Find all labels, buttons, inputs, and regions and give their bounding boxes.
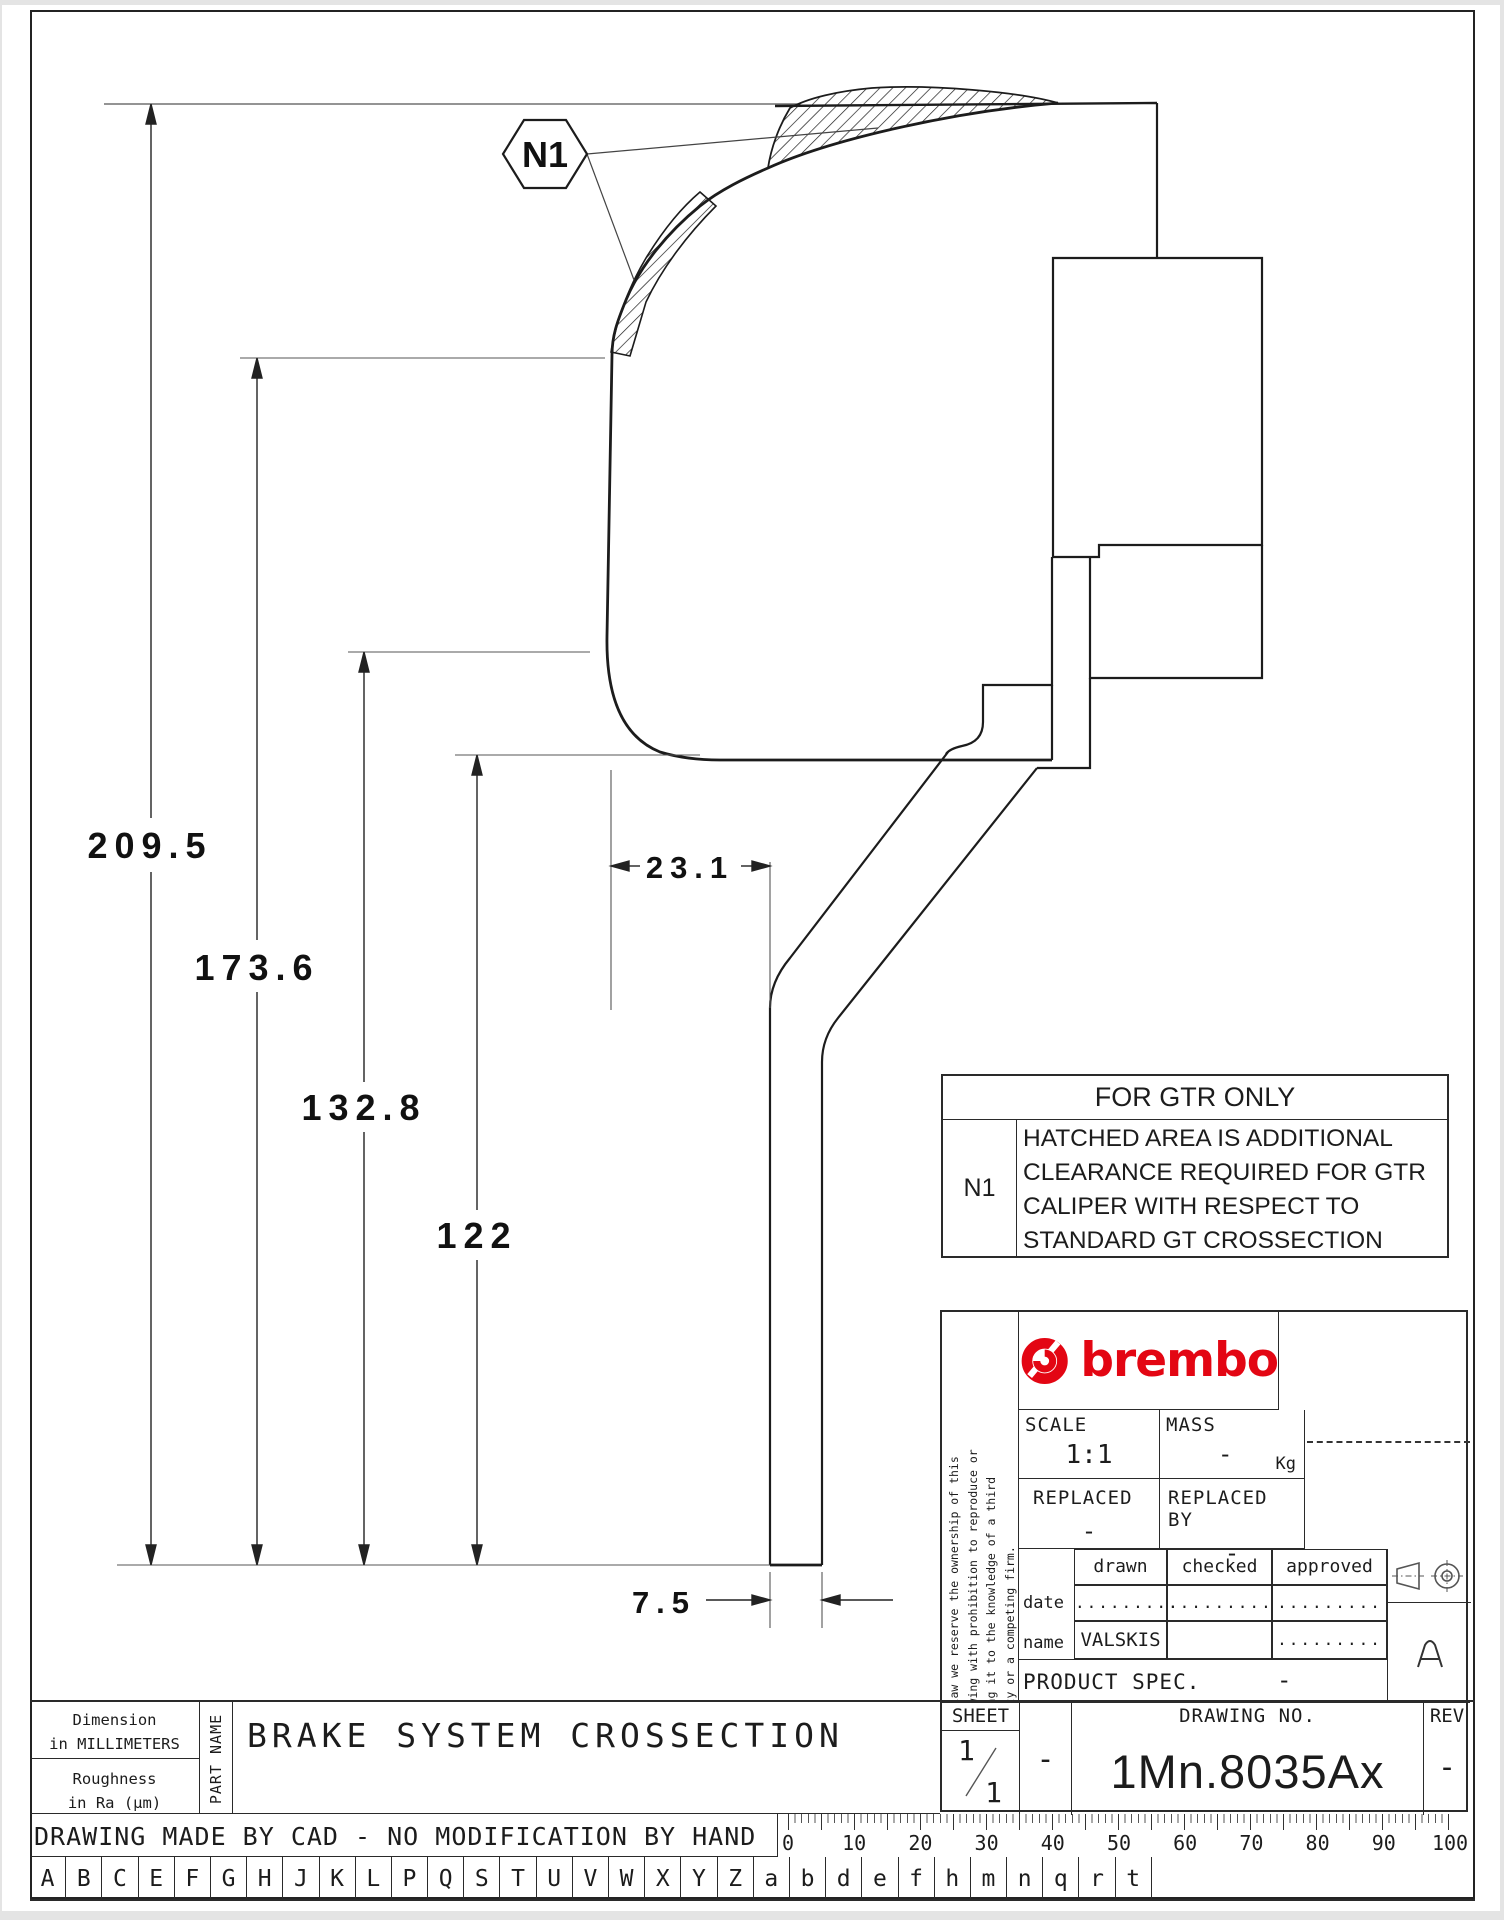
ruler-number: 100 [1420,1831,1480,1855]
zone-letter: X [645,1857,681,1901]
scale-value: 1:1 [1019,1440,1159,1470]
ruler-number: 0 [758,1831,818,1855]
drawing-sheet: 209.5 173.6 132.8 122 23.1 7.5 N1 FOR GT… [0,0,1504,1920]
gtr-note-text: HATCHED AREA IS ADDITIONALCLEARANCE REQU… [1017,1120,1449,1256]
brand-logo-cell: brembo [1019,1312,1279,1410]
disclaimer-line: drawing with prohibition to reproduce or [963,1336,982,1702]
footer-strip: Dimensionin MILLIMETERS Roughnessin Ra (… [30,1700,1475,1899]
gtr-note-line: STANDARD GT CROSSECTION [1023,1224,1443,1258]
replaced-by-cell: REPLACED BY - [1160,1479,1305,1549]
scale-ruler: 0102030405060708090100 [778,1814,1475,1857]
zone-letter: Q [428,1857,464,1901]
zone-letters-cells: ABCEFGHJKLPQSTUVWXYZabdefhmnqrt [30,1857,1475,1901]
dim-122: 122 [436,1215,517,1256]
name-checked [1167,1621,1272,1659]
symbols-column: A [1387,1549,1470,1702]
part-name-label: PART NAME [207,1703,225,1814]
product-spec-label: PRODUCT SPEC. [1023,1670,1200,1694]
zone-letter: m [971,1857,1007,1901]
dim-7-5: 7.5 [632,1585,696,1620]
mass-value: - [1218,1440,1232,1468]
brand-wordmark: brembo [1080,1333,1278,1388]
approved-header: approved [1272,1549,1387,1585]
ruler-number: 10 [824,1831,884,1855]
product-spec-row: PRODUCT SPEC. - [1019,1659,1387,1702]
ruler-number: 20 [890,1831,950,1855]
replaced-value: - [1019,1517,1159,1545]
zone-letter: e [862,1857,898,1901]
cad-note-row: DRAWING MADE BY CAD - NO MODIFICATION BY… [30,1814,778,1857]
zone-letter: T [500,1857,536,1901]
signature-grid: drawn checked approved date ......... ..… [1019,1549,1387,1702]
zone-letter: B [66,1857,102,1901]
ruler-number: 60 [1155,1831,1215,1855]
scale-cell: SCALE 1:1 [1019,1410,1160,1479]
replaced-cell: REPLACED - [1019,1479,1160,1549]
checked-header: checked [1167,1549,1272,1585]
units-note: Dimensionin MILLIMETERS [30,1702,200,1759]
drawn-header: drawn [1074,1549,1167,1585]
gtr-note-line: CALIPER WITH RESPECT TO [1023,1190,1443,1224]
gtr-clearance-hatch-upper [768,87,1058,168]
replaced-by-label: REPLACED BY [1160,1479,1304,1531]
disclaimer-line: By law we reserve the ownership of this [945,1336,964,1702]
gt-profile-outline [607,103,1058,760]
zone-letter: A [30,1857,66,1901]
mass-unit: Kg [1276,1454,1296,1474]
section-dash-line [1307,1441,1470,1443]
zone-letter: J [283,1857,319,1901]
part-name-strip: PART NAME [200,1702,233,1814]
extension-lines [117,358,822,1628]
zone-letter: F [175,1857,211,1901]
n1-balloon-label: N1 [522,134,568,175]
gtr-note-line: CLEARANCE REQUIRED FOR GTR [1023,1156,1443,1190]
dim-209-5: 209.5 [87,825,212,866]
zone-letter: q [1043,1857,1079,1901]
zone-letter: V [573,1857,609,1901]
zone-letter: K [320,1857,356,1901]
date-label: date [1023,1593,1064,1613]
zone-letter: n [1007,1857,1043,1901]
ruler-number: 40 [1023,1831,1083,1855]
zone-letter: C [102,1857,138,1901]
zone-letter: f [899,1857,935,1901]
zone-letter: E [139,1857,175,1901]
zone-letter: H [247,1857,283,1901]
gtr-note-title: FOR GTR ONLY [943,1076,1447,1120]
zone-letter: b [790,1857,826,1901]
ownership-disclaimer: By law we reserve the ownership of thisd… [942,1312,1019,1702]
name-label: name [1023,1633,1064,1653]
dimension-lines [146,104,893,1605]
zone-letter: Y [681,1857,717,1901]
gtr-note-ref: N1 [943,1120,1017,1256]
part-name-title: BRAKE SYSTEM CROSSECTION [233,1702,940,1814]
zone-letter: t [1116,1857,1152,1901]
zone-letter: L [356,1857,392,1901]
zone-letter: a [754,1857,790,1901]
ruler-number: 90 [1354,1831,1414,1855]
zone-letter: d [826,1857,862,1901]
mass-label: MASS [1160,1410,1304,1436]
brembo-mark-icon [1019,1332,1070,1390]
zone-letter: P [392,1857,428,1901]
roughness-note: Roughnessin Ra (µm) [30,1759,200,1814]
mass-cell: MASS - Kg [1160,1410,1305,1479]
ruler-number: 30 [957,1831,1017,1855]
dim-173-6: 173.6 [194,947,319,988]
disclaimer-line: party or a competing firm. [1001,1336,1019,1702]
gtr-note-table: FOR GTR ONLY N1 HATCHED AREA IS ADDITION… [941,1074,1449,1258]
gtr-note-line: HATCHED AREA IS ADDITIONAL [1023,1122,1443,1156]
date-checked: ......... [1167,1585,1272,1621]
name-drawn: VALSKIS [1074,1621,1167,1659]
dim-132-8: 132.8 [301,1087,426,1128]
date-drawn: ......... [1074,1585,1167,1621]
dim-23-1: 23.1 [646,850,734,885]
zone-letter: G [211,1857,247,1901]
date-approved: ......... [1272,1585,1387,1621]
scale-label: SCALE [1019,1410,1159,1436]
zone-letter: U [537,1857,573,1901]
first-angle-projection-icon [1391,1559,1469,1593]
replaced-label: REPLACED [1019,1479,1159,1509]
gtr-clearance-hatch-lower [611,192,716,356]
zone-letter: h [935,1857,971,1901]
name-approved: ......... [1272,1621,1387,1659]
disclaimer-line: bring it to the knowledge of a third [982,1336,1001,1702]
product-spec-value: - [1277,1666,1291,1694]
ruler-number: 80 [1288,1831,1348,1855]
ruler-number: 50 [1089,1831,1149,1855]
zone-letter: Z [718,1857,754,1901]
zone-letter: r [1079,1857,1115,1901]
zone-letter: W [609,1857,645,1901]
ruler-number: 70 [1221,1831,1281,1855]
zone-letter: S [464,1857,500,1901]
